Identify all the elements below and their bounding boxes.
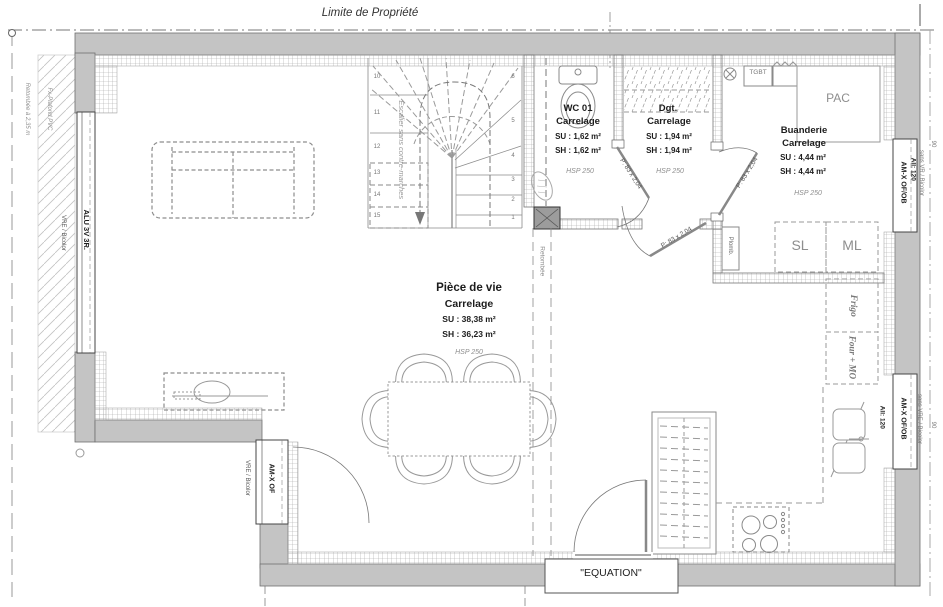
stairs-label: Escalier sans contre-marches <box>397 90 405 210</box>
windows <box>77 112 917 593</box>
room-su-buanderie: SU : 4,44 m² <box>770 154 836 162</box>
kitchen <box>652 385 869 554</box>
porch-hatch <box>38 55 75 432</box>
room-finish-dgt: Carrelage <box>638 117 700 127</box>
room-name-buanderie: Buanderie <box>772 126 836 136</box>
stair-step-number: 1 <box>506 215 520 221</box>
dining-table <box>388 382 530 456</box>
room-sh-piece-de-vie: SH : 36,23 m² <box>424 330 514 339</box>
stair-step-number: 10 <box>370 74 384 80</box>
room-su-piece-de-vie: SU : 38,38 m² <box>424 315 514 324</box>
window-right-bottom-finish: sans VRE / Bicolor <box>916 384 922 454</box>
stair-step-number: 14 <box>370 192 384 198</box>
stair-step-number: 2 <box>506 197 520 203</box>
staircase <box>368 58 522 228</box>
room-name-dgt: Dgt. <box>640 104 696 114</box>
retombee-center-label: Retombée <box>538 236 545 286</box>
room-hsp-wc: HSP 250 <box>558 168 602 175</box>
room-finish-wc: Carrelage <box>545 117 611 127</box>
stairs-direction-arrow <box>415 212 425 225</box>
room-hsp-buanderie: HSP 250 <box>788 190 828 197</box>
sl-label: SL <box>782 238 818 252</box>
window-left-type: ALU 3V 3R. <box>82 190 90 270</box>
stair-step-number: 12 <box>370 144 384 150</box>
cooktop <box>733 507 789 553</box>
window-left-finish: VRE / Bicolor <box>60 203 66 263</box>
fx-plafond-label: Fx-Plafond PVC <box>46 74 52 144</box>
plomb-label: Plomb. <box>727 221 733 271</box>
room-su-wc: SU : 1,62 m² <box>541 133 615 141</box>
stair-step-number: 6 <box>506 74 520 80</box>
window-bottom-left-type: AM-X OF <box>268 454 275 504</box>
retombee-left-label: Retombée à 2,35 m <box>24 69 30 149</box>
window-right-bottom-sill: All: 120 <box>878 397 885 437</box>
pac-label: PAC <box>820 92 856 104</box>
window-right-top-type: AM-X OF/OB <box>900 153 907 213</box>
stair-step-number: 13 <box>370 170 384 176</box>
tv-stand <box>164 373 284 410</box>
room-finish-piece-de-vie: Carrelage <box>424 299 514 310</box>
sofa <box>152 142 314 218</box>
window-bottom-left-finish: VRE / Bicolor <box>244 448 250 508</box>
room-sh-wc: SH : 1,62 m² <box>541 147 615 155</box>
meter-box <box>773 66 799 86</box>
floor-plan: Limite de Propriété WC 01 Carrelage SU :… <box>0 0 943 607</box>
window-right-top-dim: 90 <box>930 134 936 154</box>
window-right-top-sill: All: 120 <box>909 149 916 189</box>
room-sh-dgt: SH : 1,94 m² <box>634 147 704 155</box>
door-entry <box>574 480 646 552</box>
room-name-wc: WC 01 <box>550 104 606 114</box>
room-name-piece-de-vie: Pièce de vie <box>420 283 518 295</box>
ml-label: ML <box>834 238 870 252</box>
window-right-bottom-type: AM-X OF/OB <box>900 389 907 449</box>
stair-step-number: 15 <box>370 213 384 219</box>
tgbt-label: TGBT <box>744 70 772 77</box>
dining-set <box>362 354 556 484</box>
stair-step-number: 5 <box>506 118 520 124</box>
room-hsp-piece-de-vie: HSP 250 <box>446 349 492 356</box>
sink <box>831 402 869 477</box>
door-bottom-left <box>293 447 369 523</box>
room-su-dgt: SU : 1,94 m² <box>634 133 704 141</box>
window-right-top-finish: sans VR / Bicolor <box>918 138 924 208</box>
room-finish-buanderie: Carrelage <box>774 139 834 149</box>
room-hsp-dgt: HSP 250 <box>650 168 690 175</box>
stair-step-number: 11 <box>370 110 384 116</box>
room-sh-buanderie: SH : 4,44 m² <box>770 168 836 176</box>
exterior-walls <box>75 33 920 586</box>
stair-step-number: 4 <box>506 153 520 159</box>
property-line-label: Limite de Propriété <box>300 8 440 20</box>
stair-step-number: 3 <box>506 177 520 183</box>
window-right-bottom-dim: 90 <box>930 415 936 435</box>
structural-post <box>534 207 560 229</box>
entry-equation-label: "EQUATION" <box>560 568 662 579</box>
four-mo-label: Four + MO <box>848 323 857 393</box>
